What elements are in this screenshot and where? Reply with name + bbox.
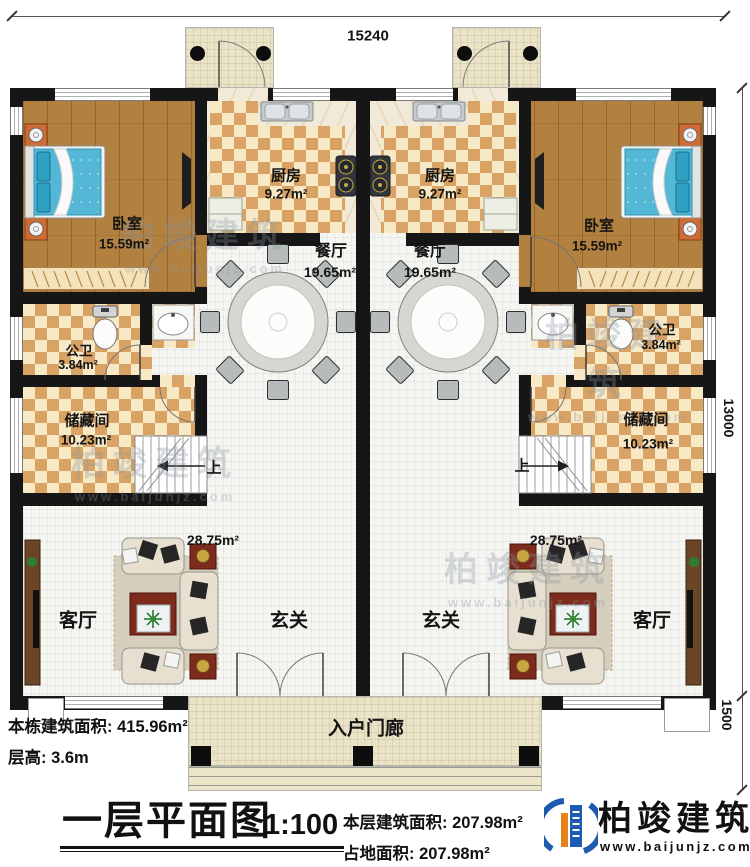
stove xyxy=(370,156,390,196)
room-label-bath-left: 公卫 xyxy=(66,344,93,358)
wardrobe-hangers xyxy=(32,271,137,287)
fridge xyxy=(209,198,242,230)
floor-area-label: 本层建筑面积: xyxy=(343,814,452,832)
room-label-dining-right: 餐厅 xyxy=(414,244,446,260)
room-area-kitchen-right: 9.27m² xyxy=(419,187,462,201)
floor-area-value: 207.98m² xyxy=(452,814,523,832)
room-label-bedroom-right: 卧室 xyxy=(584,219,614,234)
floor-height-value: 3.6m xyxy=(51,749,89,767)
room-area-storage-left: 10.23m² xyxy=(61,433,111,447)
building-area-line: 本栋建筑面积: 415.96m² xyxy=(8,718,188,736)
room-label-living-right: 客厅 xyxy=(633,612,671,631)
room-label-storage-right: 储藏间 xyxy=(623,413,668,428)
room-label-bedroom-left: 卧室 xyxy=(112,217,142,232)
stair-up-label-left: 上 xyxy=(206,461,221,476)
land-area-value: 207.98m² xyxy=(419,845,490,863)
porch-column xyxy=(523,46,538,61)
porch-column xyxy=(457,46,472,61)
dim-line-porch xyxy=(742,696,743,790)
stove xyxy=(336,156,356,196)
dim-line-right xyxy=(742,88,743,696)
dim-label-top: 15240 xyxy=(347,29,389,44)
room-area-living-left: 28.75m² xyxy=(187,533,239,547)
room-area-bath-right: 3.84m² xyxy=(641,339,681,352)
porch-column xyxy=(191,746,211,766)
porch-column xyxy=(353,746,373,766)
room-label-living-left: 客厅 xyxy=(59,612,97,631)
porch-column xyxy=(519,746,539,766)
title-underline xyxy=(60,846,344,849)
floor-area-line: 本层建筑面积: 207.98m² xyxy=(343,814,523,832)
bedroom-tv xyxy=(182,152,191,210)
tv-cabinet xyxy=(686,540,701,685)
room-area-dining-right: 19.65m² xyxy=(404,265,456,279)
title-underline-thin xyxy=(60,851,344,852)
dim-label-right: 13000 xyxy=(722,399,736,438)
room-area-dining-left: 19.65m² xyxy=(304,265,356,279)
fridge xyxy=(484,198,517,230)
room-area-bedroom-right: 15.59m² xyxy=(572,239,622,253)
room-area-storage-right: 10.23m² xyxy=(623,437,673,451)
room-area-living-right: 28.75m² xyxy=(530,533,582,547)
logo-icon xyxy=(544,795,598,857)
dim-line-top xyxy=(12,16,725,17)
logo-name: 柏竣建筑 xyxy=(598,801,750,838)
building-area-label: 本栋建筑面积: xyxy=(8,718,117,736)
room-label-bath-right: 公卫 xyxy=(649,323,676,337)
room-area-kitchen-left: 9.27m² xyxy=(265,187,308,201)
staircase xyxy=(519,436,591,493)
room-label-storage-left: 储藏间 xyxy=(64,414,109,429)
toilet xyxy=(93,306,117,349)
side-step xyxy=(664,698,710,732)
tv-cabinet xyxy=(25,540,40,685)
porch-column xyxy=(190,46,205,61)
building-area-value: 415.96m² xyxy=(117,718,188,736)
rear-porch-left xyxy=(185,27,274,88)
bed xyxy=(621,146,701,218)
wardrobe-hangers xyxy=(589,271,694,287)
rear-porch-right xyxy=(452,27,541,88)
kitchen-sink xyxy=(261,102,313,121)
stair-up-label-right: 上 xyxy=(514,459,529,474)
bedroom-tv xyxy=(535,152,544,210)
dim-label-porch-depth: 1500 xyxy=(720,699,734,730)
basin xyxy=(532,305,573,340)
drawing-scale: 1:100 xyxy=(264,810,338,842)
room-label-kitchen-right: 厨房 xyxy=(425,169,455,184)
staircase xyxy=(135,436,207,493)
room-label-entrance-porch: 入户门廊 xyxy=(328,720,404,739)
room-label-dining-left: 餐厅 xyxy=(315,244,347,260)
land-area-line: 占地面积: 207.98m² xyxy=(343,845,490,863)
room-area-bedroom-left: 15.59m² xyxy=(99,237,149,251)
floor-height-line: 层高: 3.6m xyxy=(8,749,89,767)
porch-column xyxy=(256,46,271,61)
room-label-kitchen-left: 厨房 xyxy=(271,169,301,184)
logo-website: www.baijunjz.com xyxy=(600,840,750,854)
room-label-foyer-left: 玄关 xyxy=(270,612,308,631)
basin xyxy=(153,305,194,340)
page-title: 一层平面图 xyxy=(62,799,272,843)
bed xyxy=(25,146,105,218)
room-label-foyer-right: 玄关 xyxy=(422,612,460,631)
land-area-label: 占地面积: xyxy=(343,845,419,863)
floorplan-canvas: 15240 13000 1500 xyxy=(0,0,750,867)
room-area-bath-left: 3.84m² xyxy=(58,359,98,372)
toilet xyxy=(609,306,633,349)
floor-height-label: 层高: xyxy=(8,749,51,767)
porch-steps xyxy=(188,766,542,791)
kitchen-sink xyxy=(413,102,465,121)
